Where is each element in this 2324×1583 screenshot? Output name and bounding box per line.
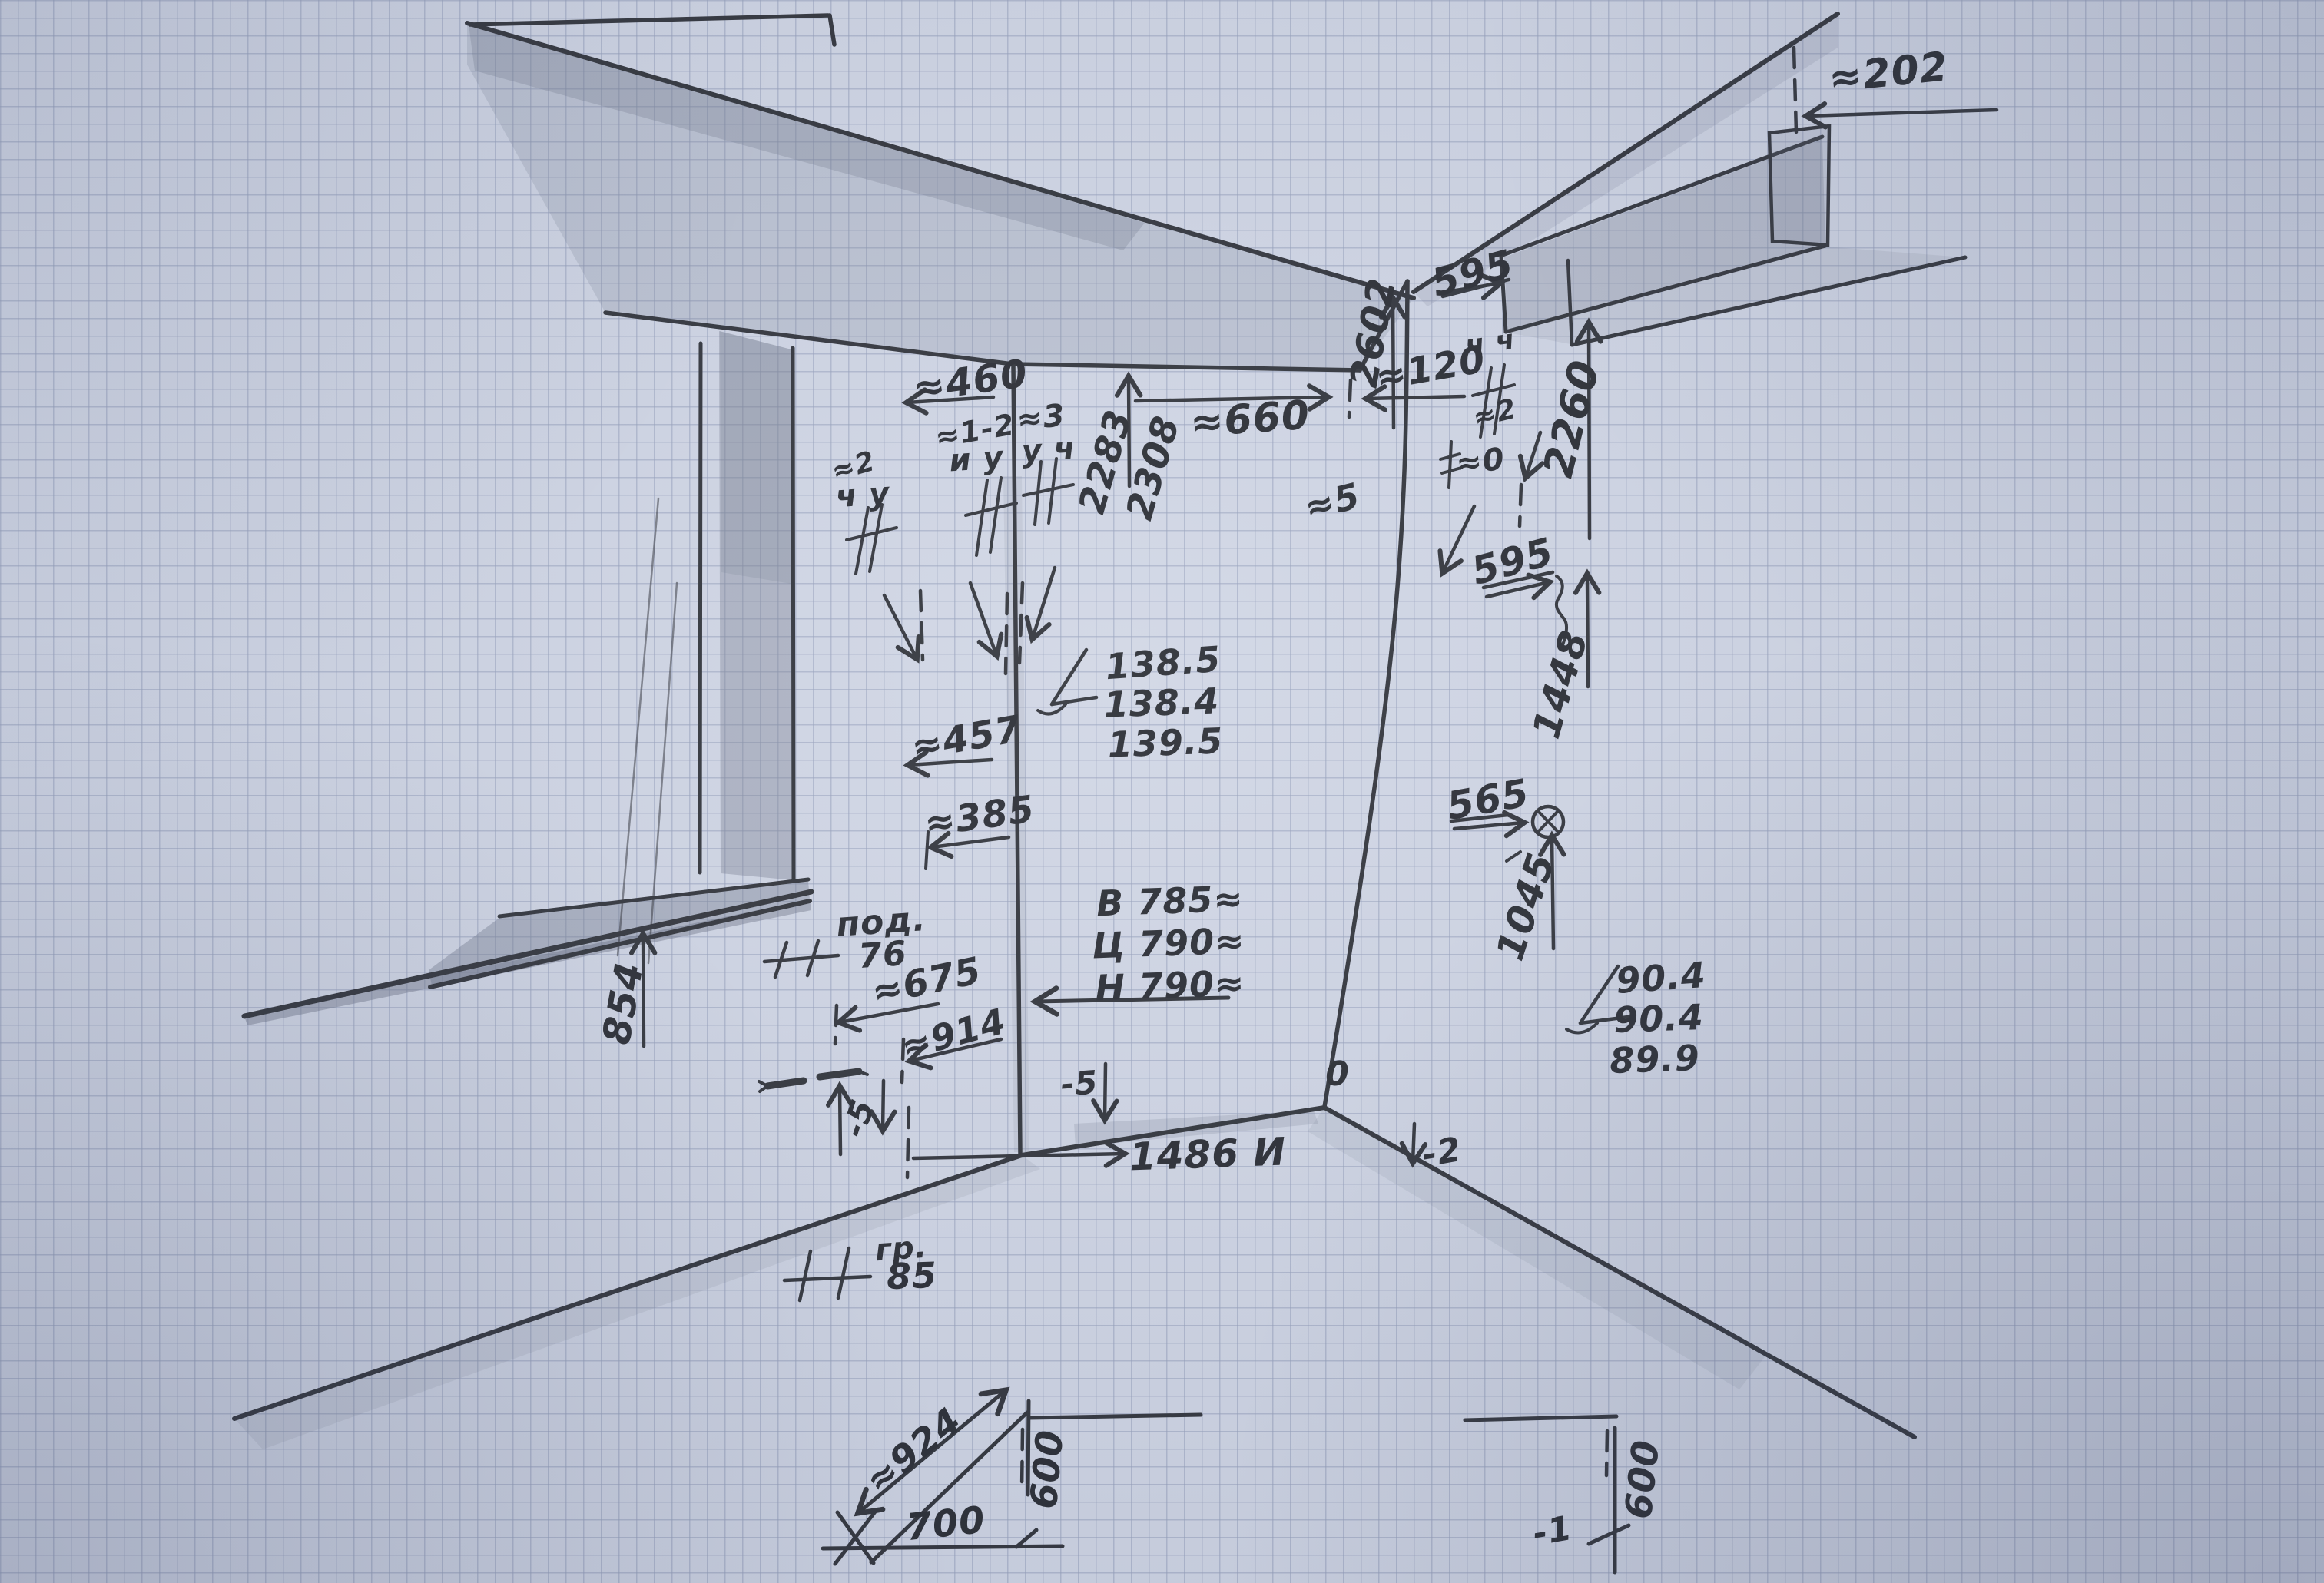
- rivet-mark-1: [767, 1081, 804, 1086]
- crossmark-mid-2: [990, 478, 1001, 552]
- floor-left-shading: [234, 1155, 1040, 1449]
- angle-right-1-label: 90.4: [1615, 957, 1707, 998]
- angle-left-1-label: 138.5: [1104, 641, 1222, 684]
- zero-mark-label: 0: [1325, 1058, 1350, 1091]
- angle-symbol-right-1: [1580, 966, 1618, 1023]
- arrow-minus5-down: [883, 1081, 884, 1130]
- dash-202: [1794, 48, 1796, 132]
- crossmark-left-3: [847, 528, 897, 540]
- rivet-mark-2: [820, 1071, 859, 1077]
- room-sketch-drawing: [0, 0, 2324, 1583]
- dash-corner-mid: [1006, 594, 1007, 674]
- arrow-1486: [913, 1154, 1124, 1158]
- minus-2-label: -2: [1420, 1133, 1464, 1173]
- crossmark-left-1: [856, 508, 868, 574]
- arrow-corner-mid: [970, 583, 996, 655]
- approx-660-label: ≈660: [1189, 396, 1311, 444]
- ceiling-notch: [830, 15, 834, 45]
- dim-1486-label: 1486 И: [1129, 1132, 1287, 1176]
- gr-hatch-tick-1: [800, 1251, 811, 1300]
- angle-left-3-label: 139.5: [1107, 723, 1224, 762]
- pencil-shading: [234, 14, 1964, 1449]
- approx-0-label: ≈0: [1454, 444, 1506, 479]
- triangle-base: [823, 1546, 1063, 1548]
- arrow-jamb-left: [884, 595, 917, 658]
- angle-symbol-left-1: [1052, 650, 1086, 704]
- ceiling-top-edge: [470, 15, 828, 25]
- window-glass-reflection-1: [618, 498, 658, 955]
- level-mark-stem: [1449, 442, 1451, 488]
- window-jamb-inner: [700, 343, 701, 873]
- beam-end-face: [1769, 126, 1829, 245]
- window-reveal-top-shading: [720, 331, 791, 584]
- mark-chu-label: ч у: [834, 479, 890, 513]
- approx-202-label: ≈202: [1827, 47, 1951, 99]
- triangle-top-line: [1029, 1415, 1201, 1418]
- gr-hatch-tick-2: [838, 1248, 849, 1298]
- arrow-202: [1807, 110, 1997, 116]
- corner-diagram-tick: [1589, 1525, 1629, 1544]
- crossmark-mid-1: [976, 480, 987, 555]
- mark-iu-label: и у: [948, 442, 1005, 477]
- sill-front-edge: [244, 892, 811, 1016]
- arrow-facing: [1033, 568, 1055, 638]
- floor-right-shading: [1308, 1108, 1767, 1389]
- minus-5-wall-label: -5: [1059, 1066, 1099, 1101]
- dim-600-left-label: 600: [1026, 1429, 1069, 1511]
- angle-right-2-label: 90.4: [1613, 999, 1704, 1038]
- dash-wall-right-a: [1520, 485, 1521, 526]
- angle-right-3-label: 89.9: [1609, 1040, 1700, 1078]
- triangle-base-tick: [1016, 1530, 1036, 1547]
- vcn-bot-label: Н 790≈: [1095, 965, 1246, 1006]
- approx-3-label: ≈3: [1015, 400, 1066, 435]
- graph-paper-sketch: ≈2025952260≈120ч ч≈2≈02602≈660≈559514485…: [0, 0, 2324, 1583]
- mark-uch-label: у ч: [1020, 433, 1076, 468]
- sill-hatch-line: [764, 955, 838, 962]
- dash-675: [835, 1005, 837, 1044]
- dash-jamb-left: [920, 591, 923, 660]
- gr-hatch-line: [784, 1277, 870, 1280]
- corner-diagram-dash: [1606, 1431, 1607, 1475]
- arrow-minus5-wall: [1105, 1064, 1106, 1119]
- crossmark-facing-3: [1023, 485, 1073, 495]
- vcn-top-label: В 785≈: [1096, 881, 1244, 922]
- dim-85-label: 85: [886, 1257, 938, 1294]
- angle-symbol-left-2: [1052, 697, 1096, 704]
- window-jamb-outer: [793, 348, 794, 880]
- dash-1486: [907, 1108, 909, 1177]
- crossmark-left-2: [870, 505, 882, 571]
- vcn-mid-label: Ц 790≈: [1092, 923, 1246, 964]
- dim-700-label: 700: [904, 1502, 987, 1547]
- dash-660: [1349, 380, 1351, 417]
- minus-1-label: -1: [1530, 1512, 1575, 1552]
- corner-diagram-top: [1465, 1416, 1616, 1420]
- mark-chch-right-label: ч ч: [1464, 326, 1517, 361]
- dim-600-right-label: 600: [1620, 1438, 1666, 1521]
- angle-left-2-label: 138.4: [1103, 683, 1220, 722]
- triangle-dash: [1022, 1429, 1023, 1491]
- arrow-minus-2: [1413, 1124, 1414, 1162]
